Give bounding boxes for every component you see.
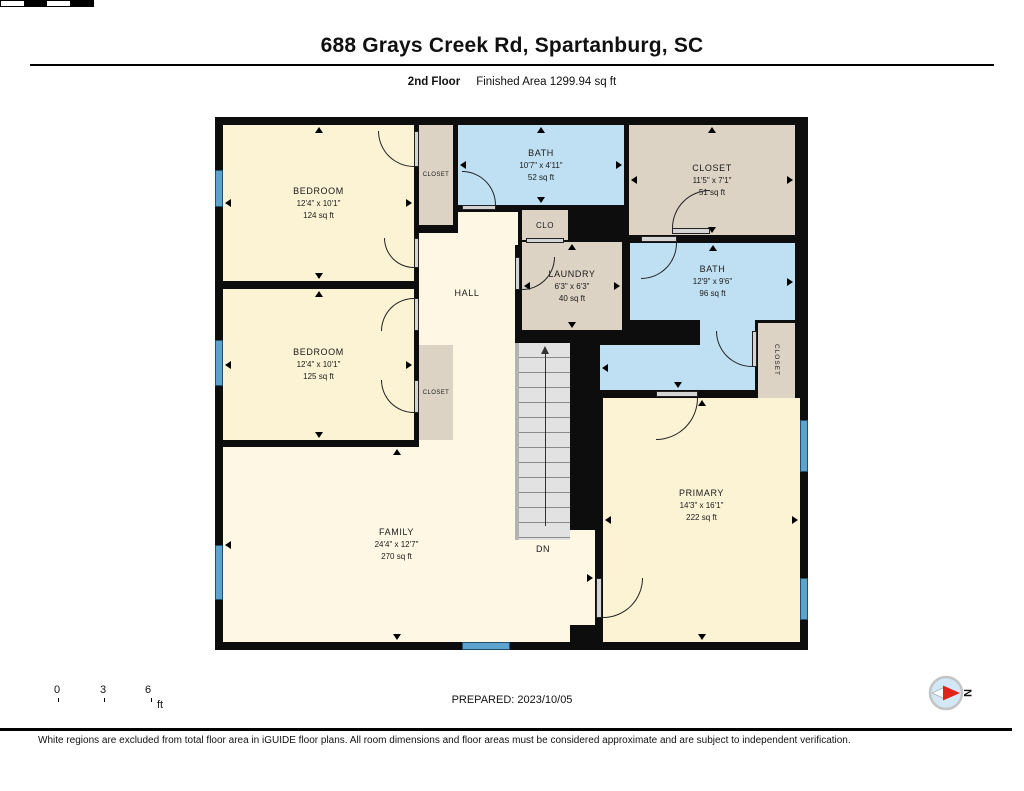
footer-divider [0, 728, 1012, 731]
room-label: BEDROOM 12'4" x 10'1" 125 sq ft [223, 289, 414, 440]
room-label: PRIMARY 14'3" x 16'1" 222 sq ft [603, 398, 800, 642]
room-dims: 11'5" x 7'1" [693, 175, 732, 187]
dimension-arrow [787, 176, 793, 184]
dimension-arrow [674, 382, 682, 388]
door-leaf [515, 257, 520, 290]
dimension-arrow [225, 199, 231, 207]
dimension-arrow [631, 176, 637, 184]
room-area: 124 sq ft [303, 210, 334, 222]
room-dims: 6'3" x 6'3" [555, 281, 590, 293]
door-leaf [752, 331, 757, 367]
room-closet-top: CLOSET 11'5" x 7'1" 51 sq ft [629, 125, 795, 235]
room-bedroom-2: BEDROOM 12'4" x 10'1" 125 sq ft [223, 289, 414, 440]
door-leaf [656, 391, 698, 397]
room-name: CLOSET [419, 345, 453, 440]
room-name: LAUNDRY [548, 268, 595, 281]
scale-unit-label: ft [157, 699, 163, 711]
stairs-arrow-icon [541, 346, 549, 354]
door-leaf [526, 238, 564, 243]
dimension-arrow [708, 127, 716, 133]
room-area: 270 sq ft [381, 551, 412, 563]
dimension-arrow [605, 516, 611, 524]
dimension-arrow [709, 245, 717, 251]
room-name: CLOSET [419, 125, 453, 225]
stairs [515, 343, 570, 540]
dimension-arrow [602, 364, 608, 372]
dimension-arrow [406, 361, 412, 369]
door-leaf [641, 236, 677, 242]
room-name: CLOSET [692, 162, 732, 175]
scale-tick-label: 0 [54, 684, 60, 696]
room-name: BEDROOM [293, 346, 344, 359]
room-name: FAMILY [379, 526, 414, 539]
window [215, 170, 223, 207]
room-name: CLOSET [758, 323, 795, 398]
dimension-arrow [225, 541, 231, 549]
stairs-dn-label: DN [520, 544, 566, 554]
scale-tick [58, 698, 59, 702]
floor-label: 2nd Floor [408, 76, 460, 88]
dimension-arrow [315, 432, 323, 438]
room-area: 52 sq ft [528, 172, 554, 184]
door-leaf [414, 131, 419, 167]
dimension-arrow [537, 127, 545, 133]
dimension-arrow [614, 282, 620, 290]
finished-area-label: Finished Area 1299.94 sq ft [476, 76, 616, 88]
dimension-arrow [225, 361, 231, 369]
scale-bar [0, 0, 94, 7]
room-hall-upper [458, 212, 518, 245]
dimension-arrow [537, 197, 545, 203]
scale-tick-label: 3 [100, 684, 106, 696]
door-leaf [672, 228, 710, 234]
room-area: 40 sq ft [559, 293, 585, 305]
room-closet-small-1: CLOSET [419, 125, 453, 225]
room-name: BATH [700, 263, 726, 276]
dimension-arrow [393, 449, 401, 455]
window [215, 340, 223, 386]
title-divider [30, 64, 994, 66]
scale-tick [104, 698, 105, 702]
dimension-arrow [568, 244, 576, 250]
dimension-arrow [460, 161, 466, 169]
room-name: BEDROOM [293, 185, 344, 198]
door-leaf [462, 205, 496, 210]
room-dims: 14'3" x 16'1" [680, 500, 724, 512]
room-name: CLO [522, 210, 568, 240]
compass-north-label: N [961, 689, 973, 697]
dimension-arrow [568, 322, 576, 328]
room-name: PRIMARY [679, 487, 724, 500]
footer-disclaimer: White regions are excluded from total fl… [38, 735, 998, 746]
floor-subtitle: 2nd FloorFinished Area 1299.94 sq ft [0, 76, 1024, 88]
room-closet-vertical: CLOSET [758, 323, 795, 398]
door-leaf [596, 578, 602, 618]
dimension-arrow [406, 199, 412, 207]
room-area: 222 sq ft [686, 512, 717, 524]
room-area: 96 sq ft [699, 288, 725, 300]
floor-plan: BEDROOM 12'4" x 10'1" 124 sq ft BEDROOM … [215, 117, 808, 650]
dimension-arrow [315, 291, 323, 297]
room-dims: 12'4" x 10'1" [297, 359, 341, 371]
page-title: 688 Grays Creek Rd, Spartanburg, SC [0, 34, 1024, 58]
page: { "header": { "title": "688 Grays Creek … [0, 0, 1024, 791]
room-dims: 12'9" x 9'6" [693, 276, 732, 288]
dimension-arrow [698, 400, 706, 406]
room-area: 125 sq ft [303, 371, 334, 383]
door-leaf [414, 380, 419, 413]
door-leaf [414, 298, 419, 331]
dimension-arrow [393, 634, 401, 640]
room-name: BATH [528, 147, 554, 160]
dimension-arrow [787, 278, 793, 286]
window [800, 420, 808, 472]
dimension-arrow [616, 161, 622, 169]
stairs-arrow-shaft [545, 353, 546, 526]
scale-tick [151, 698, 152, 702]
dimension-arrow [792, 516, 798, 524]
window [800, 578, 808, 620]
room-name: HALL [419, 288, 515, 298]
room-closet-small-2: CLOSET [419, 345, 453, 440]
door-leaf [414, 238, 419, 268]
room-label: CLOSET 11'5" x 7'1" 51 sq ft [629, 125, 795, 235]
dimension-arrow [698, 634, 706, 640]
room-dims: 10'7" x 4'11" [519, 160, 562, 172]
room-primary: PRIMARY 14'3" x 16'1" 222 sq ft [603, 398, 800, 642]
room-family-extension [570, 530, 595, 625]
dimension-arrow [587, 574, 593, 582]
room-dims: 12'4" x 10'1" [297, 198, 341, 210]
dimension-arrow [315, 273, 323, 279]
scale-tick-label: 6 [145, 684, 151, 696]
scale-bar-numbers: 0 3 6 [0, 684, 200, 698]
room-dims: 24'4" x 12'7" [375, 539, 419, 551]
window [462, 642, 510, 650]
dimension-arrow [315, 127, 323, 133]
prepared-date-label: PREPARED: 2023/10/05 [382, 694, 642, 706]
window [215, 545, 223, 600]
room-clo: CLO [522, 210, 568, 240]
